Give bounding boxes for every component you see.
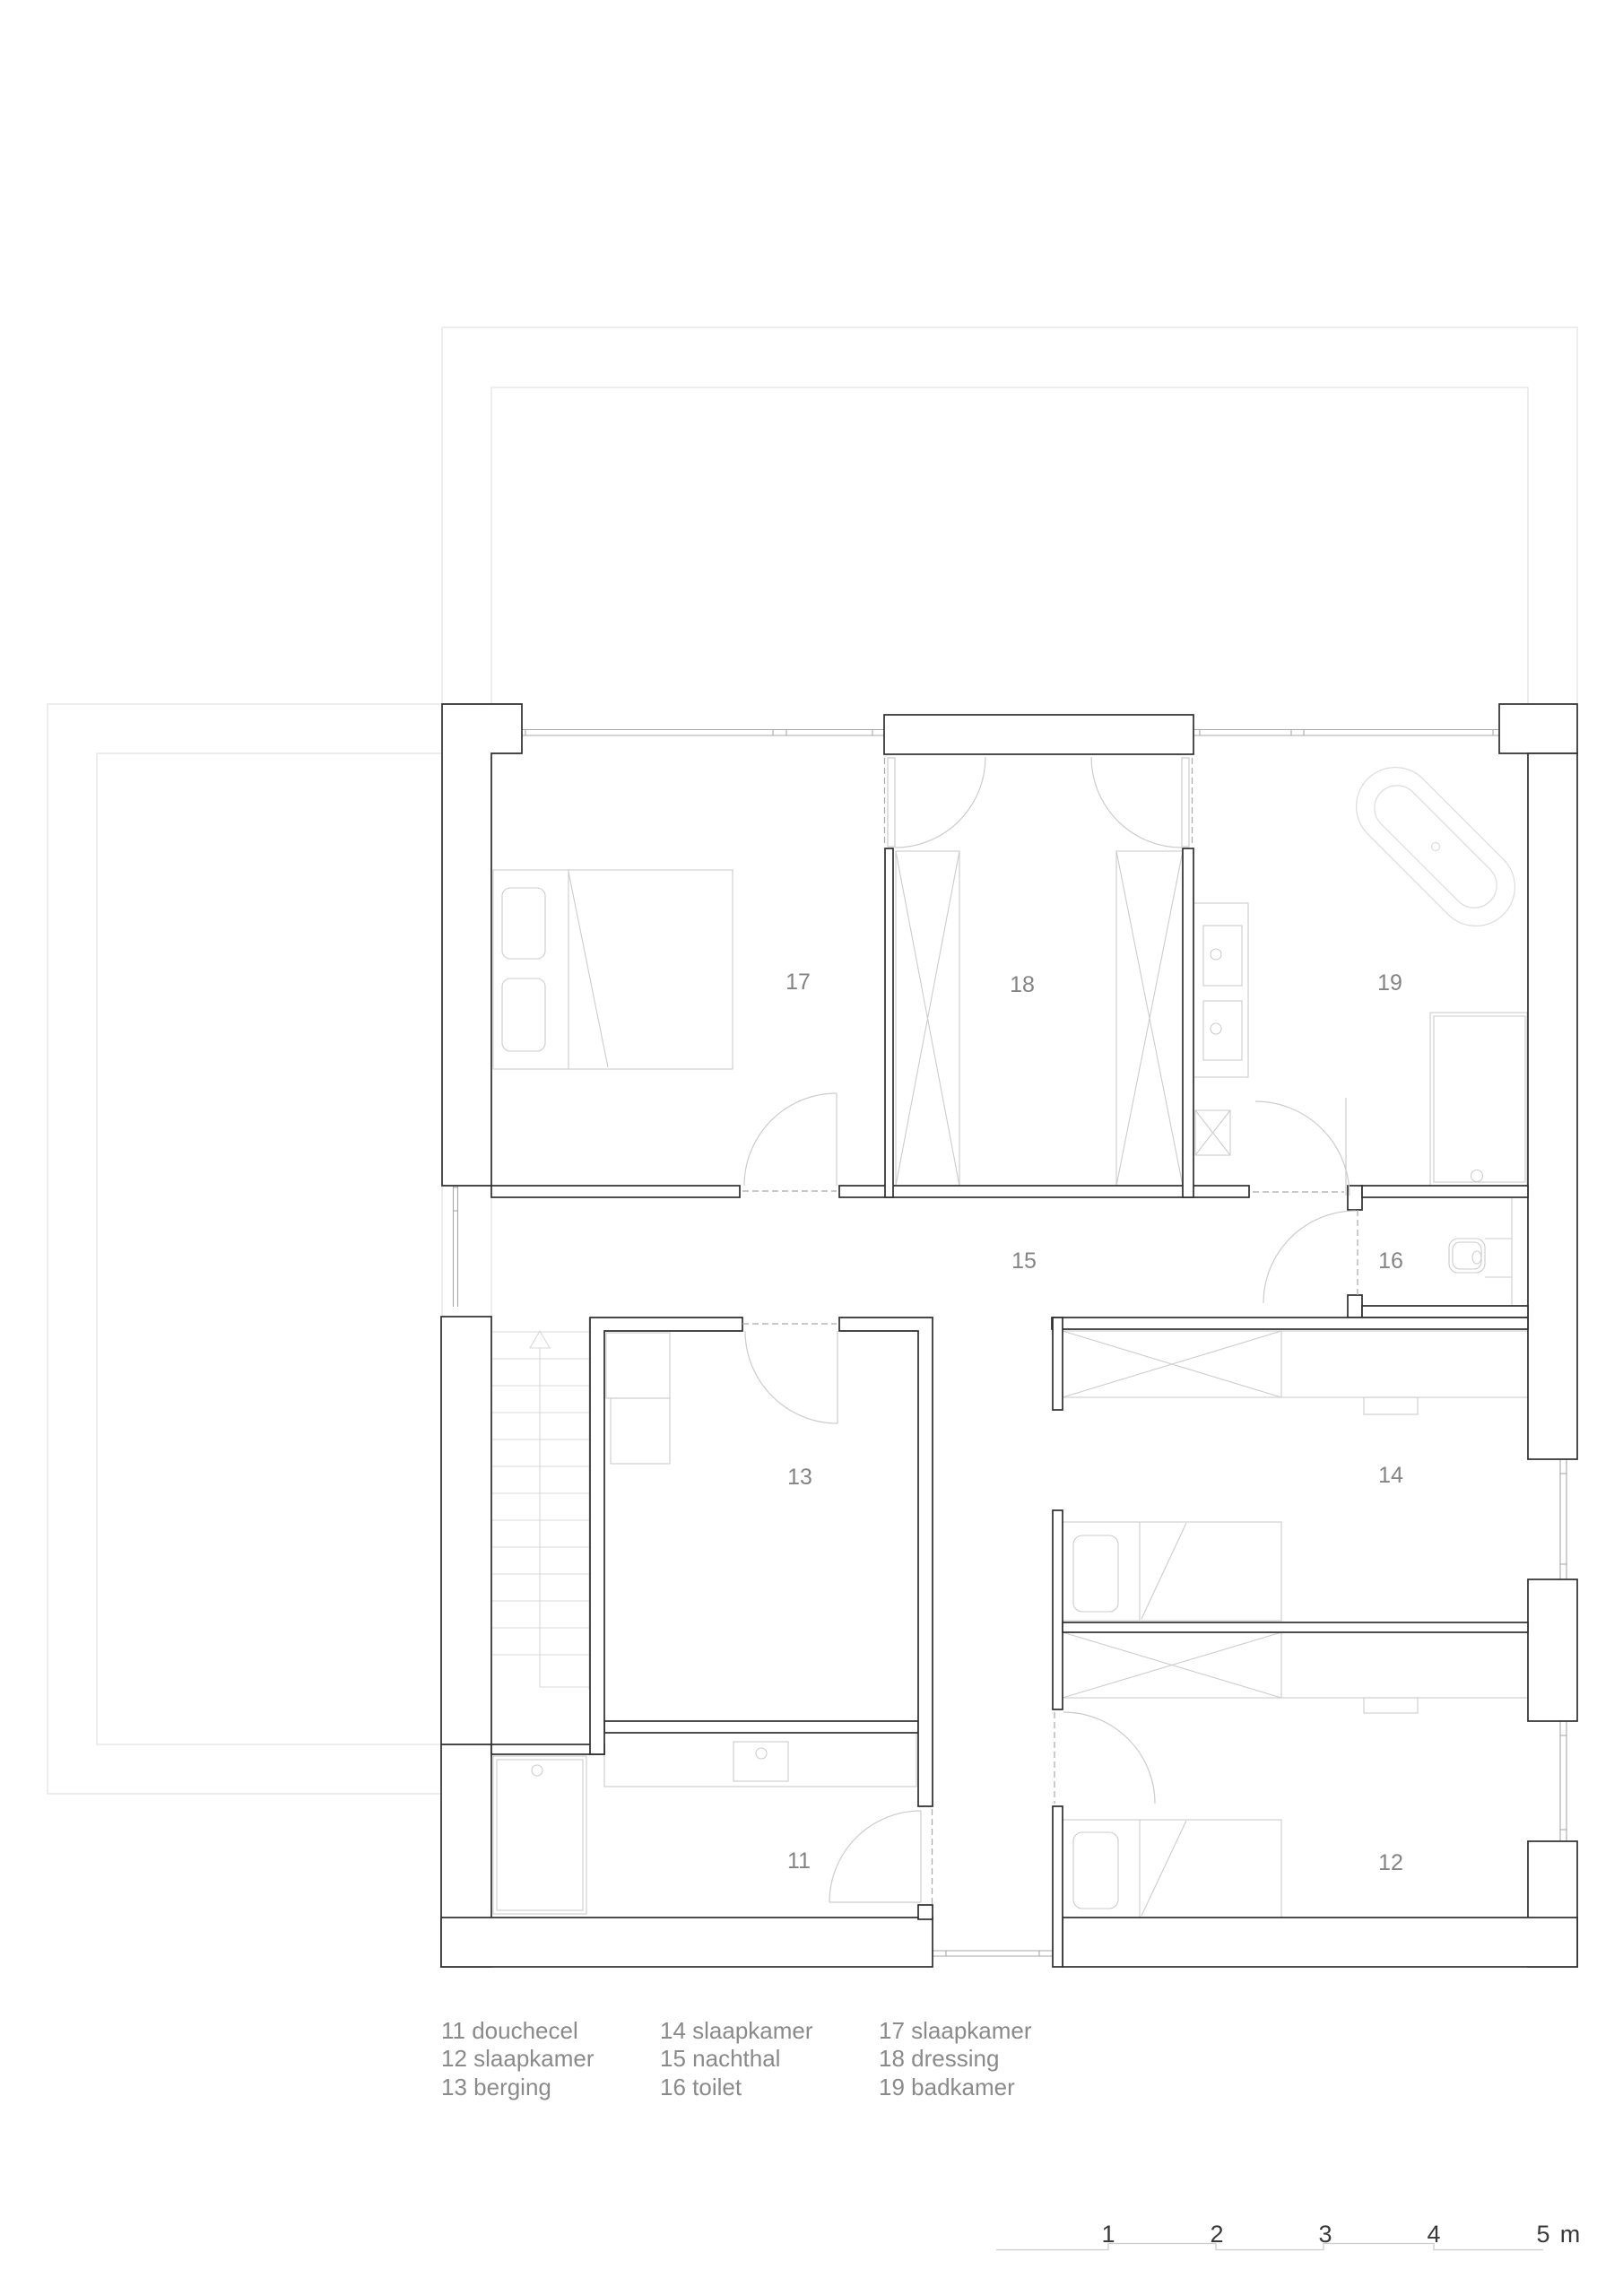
svg-text:5: 5 xyxy=(1536,2221,1549,2248)
svg-text:11: 11 xyxy=(787,1848,811,1874)
svg-text:19 badkamer: 19 badkamer xyxy=(879,2074,1015,2100)
svg-text:11 douchecel: 11 douchecel xyxy=(441,2017,578,2044)
svg-text:18 dressing: 18 dressing xyxy=(879,2045,999,2072)
svg-text:12: 12 xyxy=(1378,1850,1403,1875)
svg-text:12 slaapkamer: 12 slaapkamer xyxy=(441,2045,595,2072)
svg-text:19: 19 xyxy=(1377,970,1402,996)
svg-text:14: 14 xyxy=(1378,1463,1403,1488)
svg-text:16 toilet: 16 toilet xyxy=(660,2074,742,2100)
svg-text:17 slaapkamer: 17 slaapkamer xyxy=(879,2017,1032,2044)
svg-text:13 berging: 13 berging xyxy=(441,2074,551,2100)
svg-text:14 slaapkamer: 14 slaapkamer xyxy=(660,2017,813,2044)
svg-text:15: 15 xyxy=(1011,1248,1037,1274)
svg-text:13: 13 xyxy=(787,1465,812,1490)
svg-text:15 nachthal: 15 nachthal xyxy=(660,2045,780,2072)
svg-text:17: 17 xyxy=(785,970,811,995)
svg-text:16: 16 xyxy=(1378,1248,1403,1274)
svg-text:m: m xyxy=(1560,2221,1581,2248)
svg-text:18: 18 xyxy=(1010,972,1035,997)
